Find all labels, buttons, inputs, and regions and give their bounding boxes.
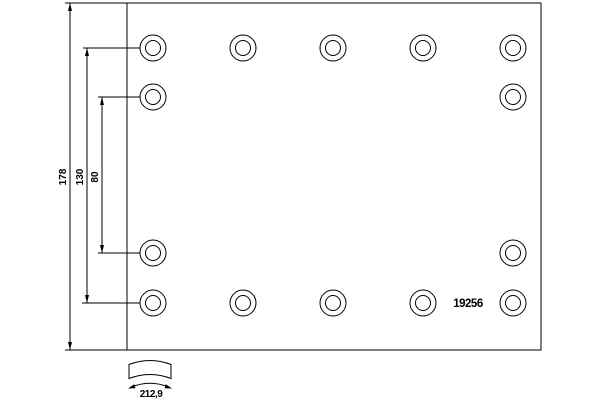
arc-width-label: 212,9 bbox=[140, 389, 163, 400]
rivet-hole bbox=[500, 240, 526, 266]
dimension-130: 130 bbox=[75, 48, 89, 303]
arrow-up-icon bbox=[100, 97, 104, 105]
rivet-hole bbox=[410, 35, 436, 61]
arrow-down-icon bbox=[100, 245, 104, 253]
dimension-label-total-height: 178 bbox=[58, 168, 69, 185]
rivet-hole bbox=[230, 290, 256, 316]
arrow-up-icon bbox=[85, 48, 89, 56]
dimension-178: 178 bbox=[58, 3, 72, 350]
rivet-hole bbox=[500, 84, 526, 110]
dimension-80: 80 bbox=[90, 97, 104, 253]
rivet-hole bbox=[320, 35, 346, 61]
arrow-down-icon bbox=[68, 342, 72, 350]
arc-width-symbol: 212,9 bbox=[128, 361, 172, 400]
technical-drawing: 178 130 80 19256 212,9 bbox=[0, 0, 600, 400]
rivet-hole bbox=[410, 290, 436, 316]
rivet-hole bbox=[230, 35, 256, 61]
arrow-up-icon bbox=[68, 3, 72, 11]
rivet-hole bbox=[320, 290, 346, 316]
arrow-right-icon bbox=[165, 384, 173, 388]
rivet-hole bbox=[140, 290, 166, 316]
arc-arrow-line bbox=[132, 383, 169, 387]
rivet-hole bbox=[140, 35, 166, 61]
part-number: 19256 bbox=[453, 298, 483, 310]
rivet-hole bbox=[500, 35, 526, 61]
rivet-hole bbox=[500, 290, 526, 316]
dimension-label-hole-span-outer: 130 bbox=[75, 168, 86, 185]
rivet-hole bbox=[140, 84, 166, 110]
rivet-hole bbox=[140, 240, 166, 266]
curved-band-icon bbox=[129, 361, 171, 379]
dimension-label-hole-span-inner: 80 bbox=[90, 171, 101, 183]
arrow-left-icon bbox=[128, 384, 136, 388]
brake-lining-diagram: 178 130 80 19256 212,9 bbox=[0, 0, 600, 400]
arrow-down-icon bbox=[85, 295, 89, 303]
